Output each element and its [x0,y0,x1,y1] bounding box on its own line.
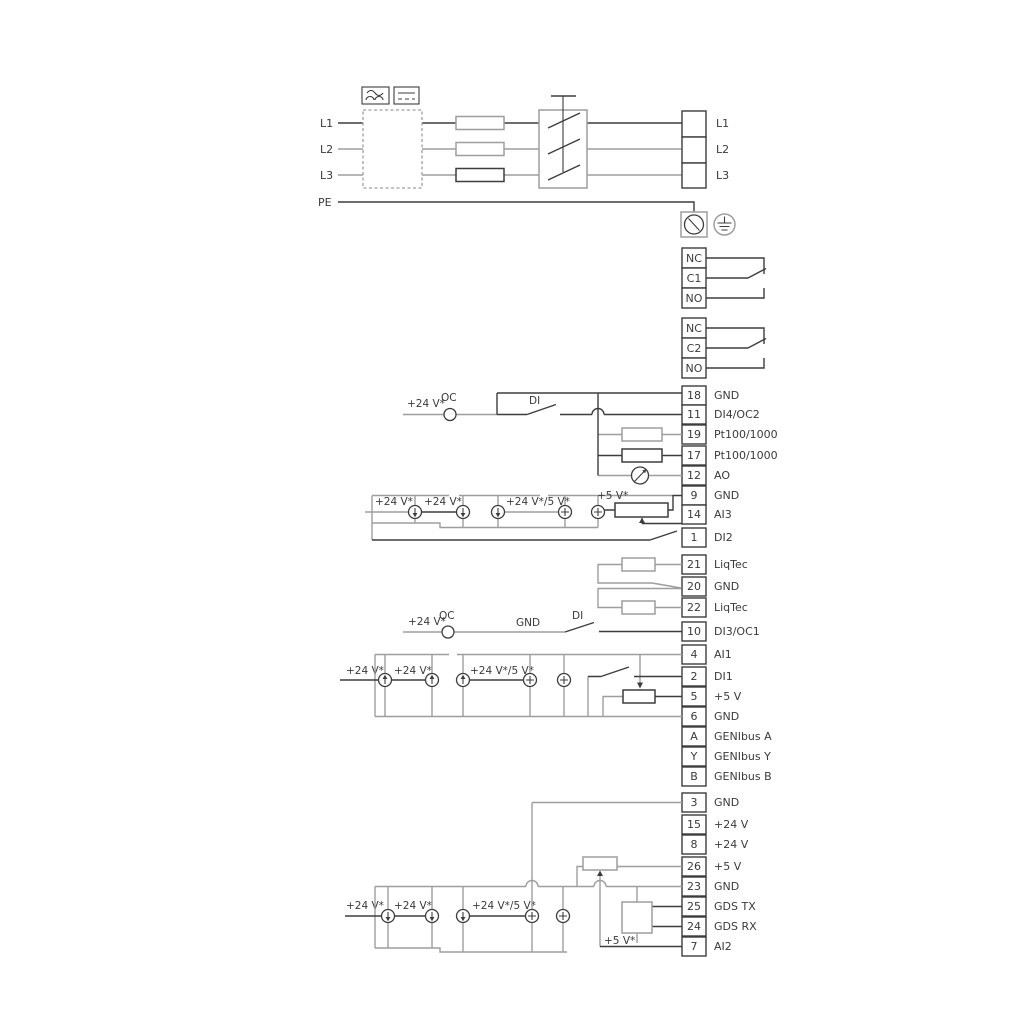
terminal-label: GND [714,710,739,723]
terminal-number: 20 [687,580,701,593]
current-source-up-icon [457,674,470,687]
earth-icon [714,214,735,235]
terminal-number: 1 [691,531,698,544]
voltage-source-plus-icon [592,506,605,519]
current-source-down-icon [382,910,395,923]
main-switch [539,96,587,188]
mains-section: L1 L2 L3 PE L1 [318,87,735,237]
terminal-label: GENIbus A [714,730,772,743]
open-collector-icon [444,409,456,421]
terminal-number: 6 [691,710,698,723]
relay2-no: NO [686,362,703,375]
liqtec-sensor-2 [622,601,655,614]
current-source-down-icon [426,910,439,923]
gnd-label: GND [516,617,540,629]
relay1-block: NC C1 NO [682,248,766,308]
terminal-number: 25 [687,900,701,913]
current-source-up-icon [379,674,392,687]
voltage-source-plus-icon [526,910,539,923]
gds-sensor-box [622,902,652,933]
phase-label-l2-in: L2 [320,143,333,156]
oc-label: OC [441,392,457,404]
terminal-number: 19 [687,428,701,441]
terminal-label: AI3 [714,508,732,521]
terminal-label: DI1 [714,670,733,683]
terminal-label: DI2 [714,531,733,544]
v24-5v-label: +24 V*/5 V* [472,900,536,912]
analog1-block: 4 2 5 6 AI1 DI1 +5 V GND +24 V* +24 V* +… [340,645,742,726]
terminal-number: B [690,770,698,783]
dc-symbol-icon [394,87,419,104]
terminal-number: 11 [687,408,701,421]
terminal-number: 15 [687,818,701,831]
terminal-label: DI4/OC2 [714,408,760,421]
ac-symbol-icon [362,87,389,104]
terminal-label: +24 V [714,818,749,831]
terminal-label: GND [714,796,739,809]
terminal-number: 18 [687,389,701,402]
genibus-block: A Y B GENIbus A GENIbus Y GENIbus B [682,727,772,786]
pt100-resistor-1 [622,428,662,441]
di1-switch [601,667,629,677]
phase-label-l2-out: L2 [716,143,729,156]
io-block-2: 3 15 8 26 23 25 24 7 GND +24 V +24 V +5 … [345,793,757,956]
pt100-resistor-2 [622,449,662,462]
potentiometer [615,503,668,523]
relay1-no: NO [686,292,703,305]
relay1-nc: NC [686,252,702,265]
current-source-down-icon [457,910,470,923]
di-label: DI [529,395,540,407]
terminal-number: Y [690,750,698,763]
terminal-number: 8 [691,838,698,851]
terminal-label: GND [714,489,739,502]
mains-wires-dark [338,123,694,212]
terminal-number: 23 [687,880,701,893]
voltage-source-plus-icon [557,910,570,923]
terminal-number: 12 [687,469,701,482]
oc-label: OC [439,610,455,622]
wiring-diagram: L1 L2 L3 PE L1 [0,0,1024,1024]
terminal-label: +5 V [714,860,742,873]
terminal-label: Pt100/1000 [714,449,778,462]
terminal-number: 4 [691,648,698,661]
v24-label: +24 V* [394,665,432,677]
fuse-l3 [456,169,504,182]
terminal-number: 10 [687,625,701,638]
screw-terminal-icon [681,212,707,237]
terminal-label: Pt100/1000 [714,428,778,441]
voltage-source-plus-icon [524,674,537,687]
terminal-label: GND [714,389,739,402]
analog-output-meter-icon [632,467,649,484]
terminal-number: 7 [691,940,698,953]
wiring-diagram-page: L1 L2 L3 PE L1 [0,0,1024,1024]
open-collector-icon [442,626,454,638]
phase-label-l1-in: L1 [320,117,333,130]
liqtec-sensor-1 [622,558,655,571]
current-source-up-icon [426,674,439,687]
v24-5v-label: +24 V*/5 V* [506,496,570,508]
current-source-down-icon [409,506,422,519]
pe-label: PE [318,196,332,209]
terminal-number: 2 [691,670,698,683]
io-block-1: 18 11 19 17 12 9 14 1 GND DI4/OC2 Pt100/… [365,386,778,547]
potentiometer [583,857,617,876]
terminal-label: LiqTec [714,601,748,614]
phase-label-l3-out: L3 [716,169,729,182]
phase-label-l3-in: L3 [320,169,333,182]
terminal-number: 26 [687,860,701,873]
voltage-source-plus-icon [558,674,571,687]
terminal-label: GENIbus B [714,770,772,783]
terminal-number: 14 [687,508,701,521]
voltage-source-plus-icon [559,506,572,519]
fuse-l2 [456,143,504,156]
terminal-number: 5 [691,690,698,703]
v24-label: +24 V* [424,496,462,508]
relay2-nc: NC [686,322,702,335]
relay2-c2: C2 [687,342,702,355]
v24-label: +24 V* [346,665,384,677]
relay1-wires [706,258,764,298]
mains-wires-gray [338,149,682,175]
terminal-label: AI2 [714,940,732,953]
terminal-number: A [690,730,698,743]
terminal-label: +24 V [714,838,749,851]
v24-label: +24 V* [394,900,432,912]
relay1-c1: C1 [687,272,702,285]
v24-label: +24 V* [375,496,413,508]
terminal-label: AI1 [714,648,732,661]
terminal-label: GENIbus Y [714,750,771,763]
relay2-wires [706,328,764,368]
terminal-label: GND [714,580,739,593]
terminal-label: GDS RX [714,920,757,933]
di-label: DI [572,610,583,622]
potentiometer [623,690,655,703]
v5-label: +5 V* [597,490,628,502]
fuse-l1 [456,117,504,130]
terminal-label: +5 V [714,690,742,703]
current-source-down-icon [457,506,470,519]
terminal-number: 3 [691,796,698,809]
wiper-arrow [637,683,643,689]
di3-switch [565,623,594,633]
rail-hops [526,881,606,887]
terminal-label: GND [714,880,739,893]
v24-label: +24 V* [346,900,384,912]
relay2-block: NC C2 NO [682,318,766,378]
current-source-down-icon [492,506,505,519]
converter-box [363,110,422,188]
v24-label: +24 V* [407,398,445,410]
terminal-number: 21 [687,558,701,571]
terminal-label: GDS TX [714,900,756,913]
v24-5v-label: +24 V*/5 V* [470,665,534,677]
phase-label-l1-out: L1 [716,117,729,130]
v5-label: +5 V* [604,935,635,947]
terminal-number: 17 [687,449,701,462]
terminal-label: LiqTec [714,558,748,571]
terminal-number: 24 [687,920,701,933]
mains-output-terminal-block [682,111,706,188]
terminal-label: AO [714,469,730,482]
terminal-number: 9 [691,489,698,502]
terminal-number: 22 [687,601,701,614]
terminal-label: DI3/OC1 [714,625,760,638]
liqtec-block: 21 20 22 LiqTec GND LiqTec [598,555,748,617]
di2-switch [650,531,677,540]
